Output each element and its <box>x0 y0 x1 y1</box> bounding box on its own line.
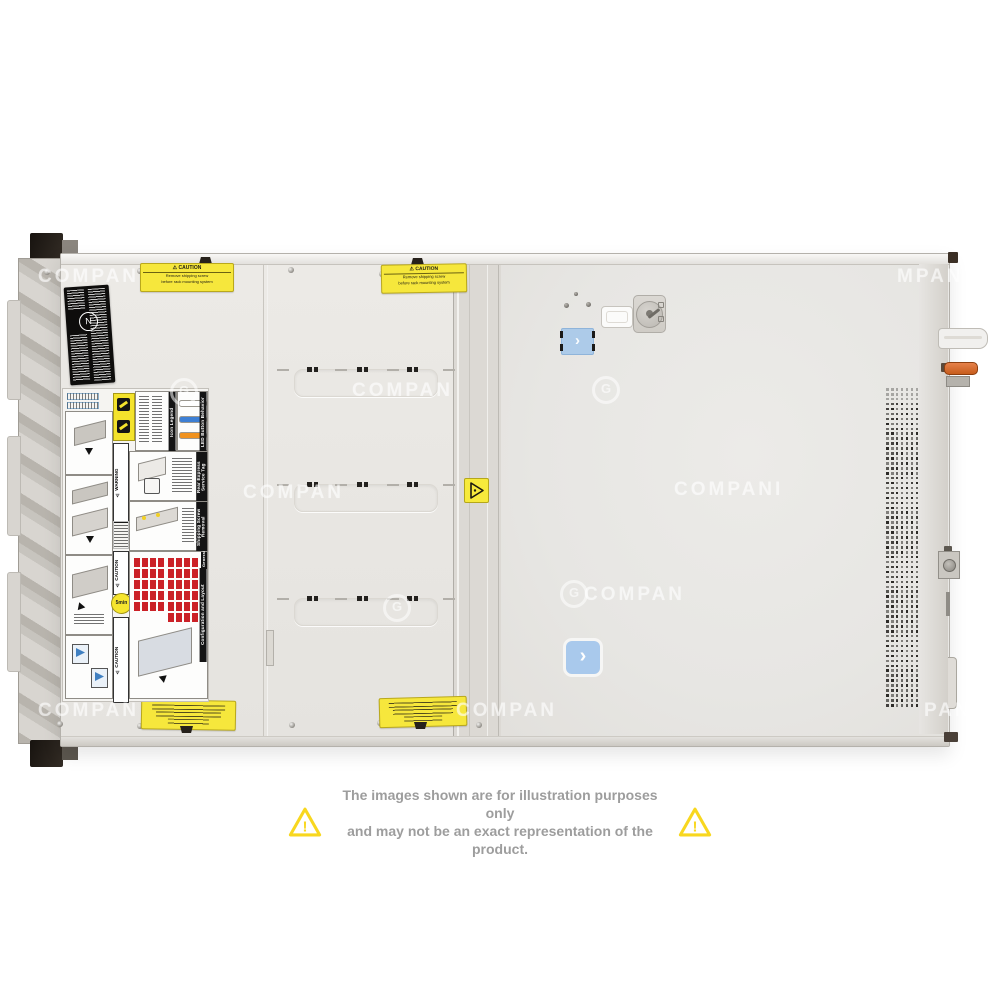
rear-express-service-tag-label: Rear Express Service Tag <box>129 451 208 501</box>
warning-strip: ⚠ WARNING <box>113 443 129 523</box>
sticker-notch <box>180 726 193 733</box>
vent-pair <box>307 482 318 487</box>
stamp-dash <box>277 369 289 371</box>
legend-icons <box>139 396 149 444</box>
pinch-hazard-icon <box>117 420 130 433</box>
label-header: Rear Express Service Tag <box>196 452 207 502</box>
disclaimer: ! The images shown are for illustration … <box>288 786 712 858</box>
latch-clip <box>592 331 595 338</box>
vent-pair <box>307 596 318 601</box>
arrow-icon <box>86 536 94 543</box>
screw <box>57 721 63 727</box>
stamp-dash <box>335 484 347 486</box>
latch-diagram <box>72 644 89 664</box>
illegible-text <box>393 708 453 715</box>
screw <box>476 722 482 728</box>
psu-release-latch <box>944 362 978 375</box>
chassis-bottom-edge <box>61 736 949 746</box>
rear-foot <box>944 732 958 742</box>
cover-release-slider <box>601 306 633 328</box>
disclaimer-text: The images shown are for illustration pu… <box>334 786 666 858</box>
screw <box>44 269 50 275</box>
divider-line <box>453 265 454 736</box>
illegible-text <box>156 711 221 717</box>
disclaimer-line-1: The images shown are for illustration pu… <box>334 786 666 822</box>
chassis-diagram <box>72 566 108 599</box>
caution-heading: ⚠ CAUTION <box>143 265 231 273</box>
warning-triangle-icon <box>465 479 488 502</box>
alignment-dot <box>586 302 591 307</box>
pinch-warning-block <box>113 393 135 441</box>
tag-diagram <box>144 478 160 494</box>
alignment-dot <box>574 292 578 296</box>
chevron-right-icon: › <box>575 332 580 349</box>
screw <box>288 267 294 273</box>
led-button-behavior-label: LED Button Behavior <box>177 391 208 451</box>
rear-bulge <box>948 657 957 709</box>
latch-diagram <box>91 668 108 688</box>
label-header: LED Button Behavior <box>200 392 207 452</box>
connector-parts <box>946 376 970 387</box>
svg-text:!: ! <box>303 819 308 836</box>
illegible-text <box>74 614 104 626</box>
rear-tab <box>948 252 958 263</box>
bracket-screw <box>943 559 956 572</box>
stamp-dash <box>443 484 455 486</box>
blue-header-strip <box>67 393 99 400</box>
stamped-recess-row <box>294 484 438 512</box>
sticker-notch <box>414 722 427 729</box>
cover-latch-button-lower: › <box>566 641 600 674</box>
illegible-text <box>113 521 129 549</box>
stamp-dash <box>443 598 455 600</box>
chevron-right-icon: › <box>580 645 587 667</box>
rear-slot <box>946 592 950 616</box>
arrow-icon <box>75 602 86 613</box>
vent-perforation-grid <box>886 388 918 707</box>
stamp-dash <box>335 598 347 600</box>
caution-sticker-top-right: ⚠ CAUTION Remove shipping screw before r… <box>381 263 467 293</box>
arrow-icon <box>85 448 93 455</box>
locked-icon <box>658 316 664 322</box>
left-chassis-rail <box>18 258 64 744</box>
rail-tab <box>7 572 21 672</box>
label-header: Shipping Screw Removal <box>196 502 207 552</box>
caution-line: before rack mounting system <box>143 279 231 285</box>
illegible-text <box>404 716 442 723</box>
diagram-box <box>65 411 113 475</box>
latch-clip <box>560 344 563 351</box>
legend-icons <box>152 396 162 444</box>
pinch-hazard-icon <box>117 398 130 411</box>
rack-ear-top-left <box>30 233 63 261</box>
rail-tab <box>7 300 21 400</box>
caution-strip: ⚠ CAUTION <box>113 551 129 595</box>
service-label-cluster: ⚠ WARNING ⚠ CAUTION 5min ⚠ CAUTION Icon … <box>62 388 209 702</box>
isometric-server-diagram <box>138 627 192 676</box>
vent-pair <box>307 367 318 372</box>
stamped-recess-row <box>294 598 438 626</box>
regulatory-label: N <box>64 285 116 386</box>
vent-pair <box>407 596 418 601</box>
alignment-dot <box>564 303 569 308</box>
screw-highlight <box>156 513 160 517</box>
latch-glyph <box>95 672 104 681</box>
screw-highlight <box>142 516 146 520</box>
latch-clip <box>592 344 595 351</box>
diagram-box <box>65 635 113 699</box>
diagram-box <box>65 555 113 635</box>
vent-pair <box>407 367 418 372</box>
illegible-text <box>152 704 225 710</box>
blue-header-strip <box>67 402 99 409</box>
illegible-text <box>70 334 90 381</box>
stamp-dash <box>443 369 455 371</box>
vent-pair <box>357 482 368 487</box>
shipping-screw-removal-label: Shipping Screw Removal <box>129 501 208 551</box>
small-vertical-label <box>266 630 274 666</box>
vent-pair <box>357 367 368 372</box>
latch-clip <box>560 331 563 338</box>
rail-tab <box>7 436 21 536</box>
screw <box>289 722 295 728</box>
unlocked-icon <box>658 302 664 308</box>
stamp-dash <box>387 484 399 486</box>
latch-glyph <box>76 648 85 657</box>
psu-handle <box>938 328 988 349</box>
chassis-diagram <box>72 508 108 537</box>
rail-diagram <box>74 420 106 446</box>
illegible-text <box>389 701 457 708</box>
svg-text:!: ! <box>693 819 698 836</box>
warning-triangle-icon: ! <box>288 806 322 838</box>
vent-pair <box>407 482 418 487</box>
diagram-box <box>65 475 113 555</box>
divider-line <box>457 265 459 736</box>
label-header: Icon Legend <box>169 392 176 452</box>
disclaimer-line-2: and may not be an exact representation o… <box>334 822 666 858</box>
cover-latch-button: › <box>561 328 594 355</box>
arrow-icon <box>159 672 170 683</box>
caution-line: before rack mounting system <box>384 279 464 286</box>
divider-line <box>498 265 499 736</box>
illegible-text <box>88 288 111 381</box>
stamp-dash <box>387 598 399 600</box>
stamp-dash <box>277 598 289 600</box>
illegible-text <box>182 508 194 544</box>
rear-bracket <box>938 551 960 579</box>
vent-pair <box>357 596 368 601</box>
icon-legend-label: Icon Legend <box>135 391 177 451</box>
rack-ear-bottom-left <box>30 740 63 767</box>
illegible-text <box>172 458 192 494</box>
caution-sticker-top-left: ⚠ CAUTION Remove shipping screw before r… <box>140 263 234 292</box>
drive-bay-grid <box>168 558 198 622</box>
panel-seam <box>263 265 264 736</box>
drive-bay-grid <box>134 558 164 611</box>
label-header: Configuration and Layout <box>200 568 207 662</box>
configuration-layout-label: Configuration and Layout General <box>129 551 208 699</box>
warning-triangle-sticker <box>464 478 489 503</box>
stamped-recess-row <box>294 369 438 397</box>
illegible-text <box>67 289 85 310</box>
stamp-dash <box>387 369 399 371</box>
rail-diagram <box>72 482 108 505</box>
stamp-dash <box>335 369 347 371</box>
warning-triangle-icon: ! <box>678 806 712 838</box>
caution-strip: ⚠ CAUTION <box>113 617 129 703</box>
label-header: General <box>201 552 207 569</box>
stamp-dash <box>277 484 289 486</box>
product-photo-scene: ⚠ CAUTION Remove shipping screw before r… <box>0 0 1000 1000</box>
illegible-text <box>168 719 209 726</box>
keylock-dial <box>633 295 666 333</box>
